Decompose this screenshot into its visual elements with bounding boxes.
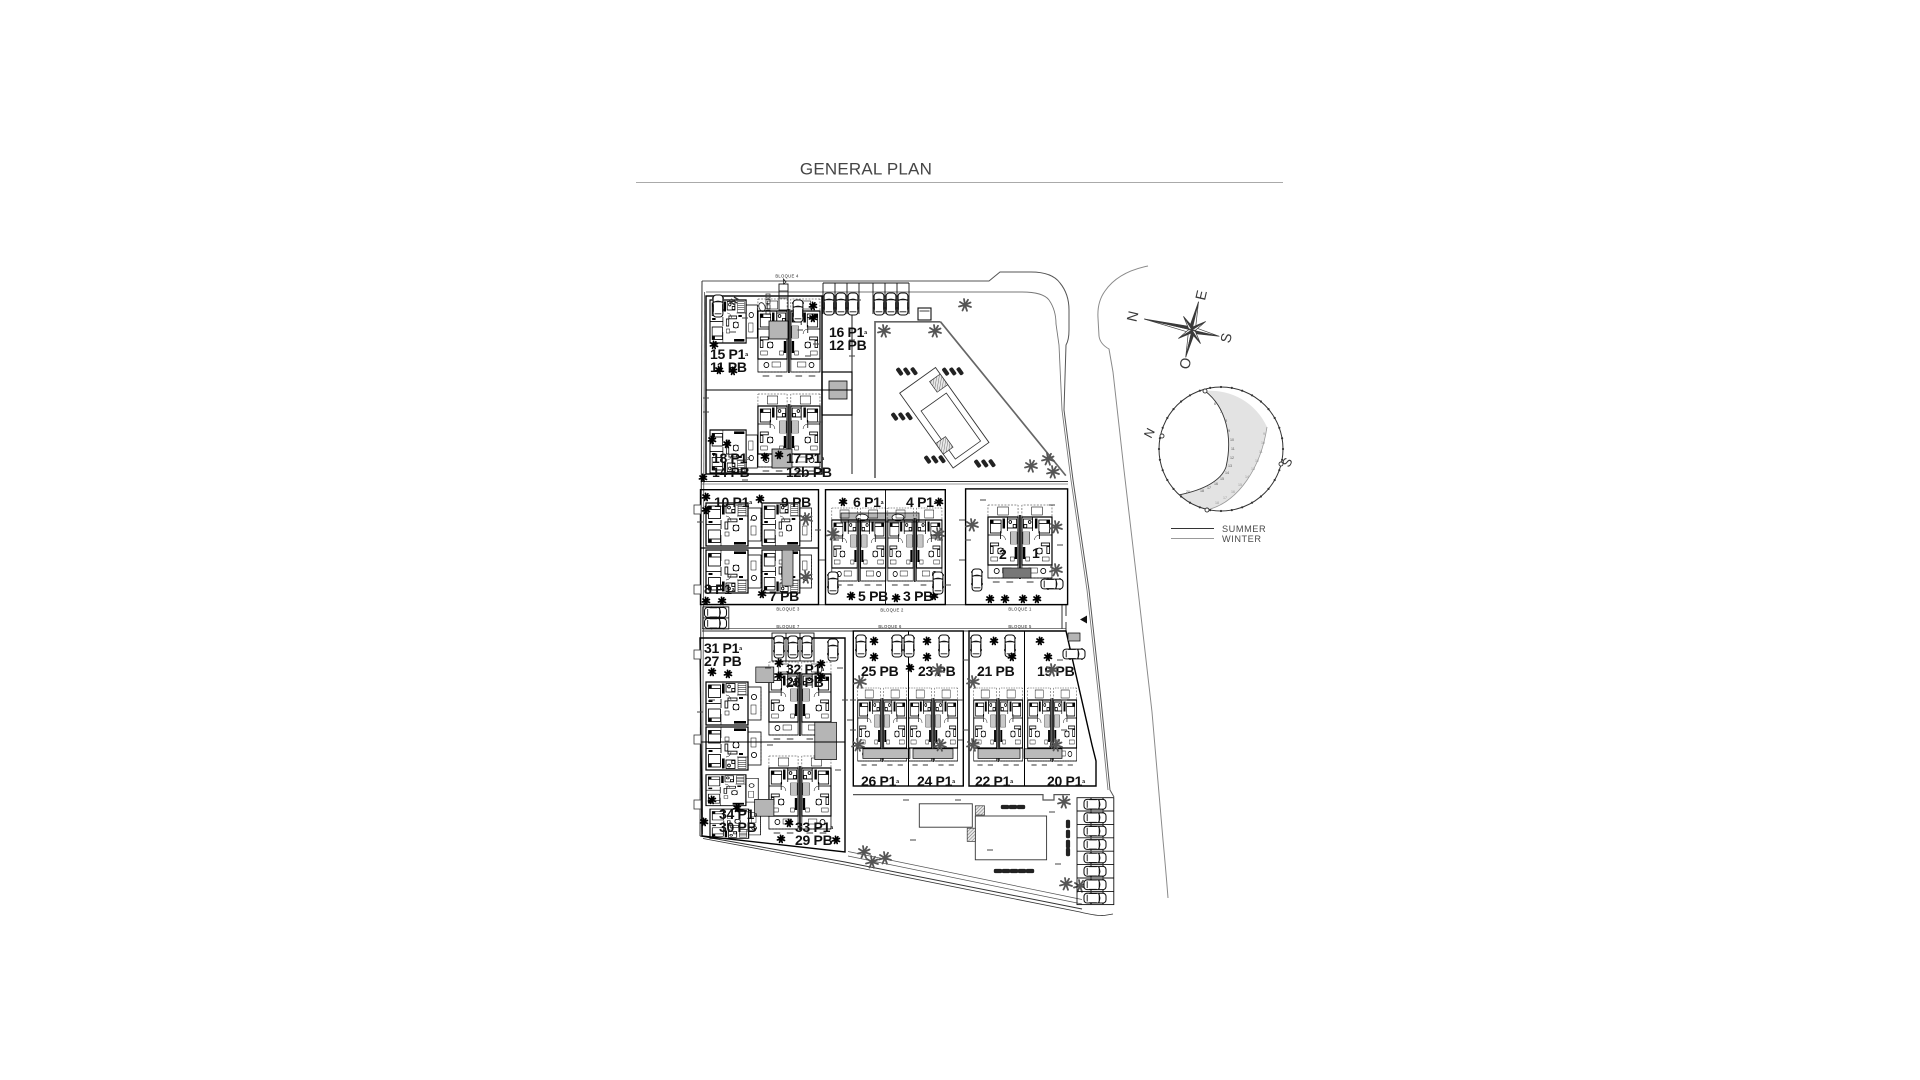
svg-text:9: 9	[1263, 432, 1265, 436]
svg-text:10 P1ª: 10 P1ª	[714, 494, 752, 510]
svg-text:17: 17	[1223, 496, 1227, 500]
svg-text:12: 12	[1230, 456, 1234, 460]
svg-text:10: 10	[1261, 441, 1265, 445]
svg-text:WINTER: WINTER	[1222, 534, 1262, 544]
svg-text:21 PB: 21 PB	[977, 663, 1015, 679]
svg-text:8: 8	[1225, 419, 1227, 423]
svg-text:18: 18	[1200, 489, 1204, 493]
svg-text:29 PB: 29 PB	[795, 832, 833, 848]
svg-text:14 PB: 14 PB	[712, 464, 750, 480]
svg-text:BLOQUE 7: BLOQUE 7	[776, 624, 800, 629]
svg-text:14: 14	[1225, 471, 1229, 475]
svg-text:15: 15	[1220, 477, 1224, 481]
svg-text:12b PB: 12b PB	[786, 464, 832, 480]
svg-text:20: 20	[1186, 490, 1190, 494]
svg-text:3 PB: 3 PB	[903, 588, 933, 604]
svg-text:11 PB: 11 PB	[710, 359, 747, 375]
svg-text:14: 14	[1245, 475, 1249, 479]
svg-text:12 PB: 12 PB	[829, 337, 867, 353]
svg-text:4 P1ª: 4 P1ª	[906, 494, 937, 510]
svg-text:BLOQUE 2: BLOQUE 2	[880, 608, 904, 613]
svg-text:15: 15	[1238, 483, 1242, 487]
svg-text:GENERAL PLAN: GENERAL PLAN	[800, 160, 932, 179]
svg-text:BLOQUE 5: BLOQUE 5	[1008, 624, 1032, 629]
svg-text:30 PB: 30 PB	[719, 819, 757, 835]
svg-text:BLOQUE 4: BLOQUE 4	[775, 274, 799, 279]
svg-text:27 PB: 27 PB	[704, 653, 742, 669]
svg-text:5 PB: 5 PB	[858, 588, 888, 604]
svg-text:16: 16	[1214, 482, 1218, 486]
svg-text:SUMMER: SUMMER	[1222, 524, 1266, 534]
svg-text:11: 11	[1231, 447, 1235, 451]
svg-text:25 PB: 25 PB	[861, 663, 899, 679]
svg-text:BLOQUE 3: BLOQUE 3	[776, 607, 800, 612]
svg-text:16: 16	[1231, 490, 1235, 494]
svg-text:7 PB: 7 PB	[769, 588, 799, 604]
svg-text:8 P1ª: 8 P1ª	[704, 581, 735, 597]
svg-text:12: 12	[1255, 459, 1259, 463]
svg-text:BLOQUE 1: BLOQUE 1	[1008, 607, 1032, 612]
svg-text:BLOQUE 6: BLOQUE 6	[878, 624, 902, 629]
svg-text:11: 11	[1259, 450, 1263, 454]
svg-text:20 P1ª: 20 P1ª	[1047, 773, 1085, 789]
svg-text:22 P1ª: 22 P1ª	[975, 773, 1013, 789]
svg-text:13: 13	[1251, 467, 1255, 471]
svg-text:26 P1ª: 26 P1ª	[861, 773, 899, 789]
svg-text:7: 7	[1220, 410, 1222, 414]
svg-text:1: 1	[1032, 545, 1040, 561]
svg-text:28 PB: 28 PB	[786, 674, 824, 690]
svg-text:18: 18	[1215, 501, 1219, 505]
svg-text:6 P1ª: 6 P1ª	[853, 494, 884, 510]
svg-text:9 PB: 9 PB	[781, 494, 811, 510]
svg-text:13: 13	[1228, 464, 1232, 468]
svg-text:10: 10	[1230, 438, 1234, 442]
svg-text:17: 17	[1207, 486, 1211, 490]
svg-text:9: 9	[1228, 429, 1230, 433]
svg-text:2: 2	[999, 546, 1007, 562]
svg-text:6: 6	[1214, 402, 1216, 406]
svg-text:24 P1ª: 24 P1ª	[917, 773, 955, 789]
